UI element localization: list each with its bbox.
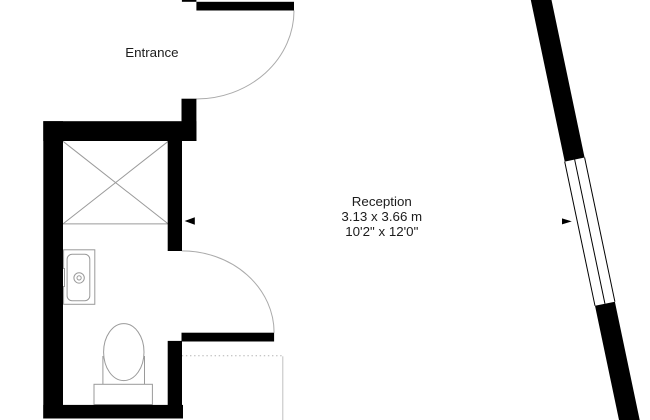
svg-text:Entrance: Entrance — [125, 45, 178, 60]
svg-text:3.13 x 3.66 m: 3.13 x 3.66 m — [341, 209, 422, 224]
svg-text:10'2" x 12'0": 10'2" x 12'0" — [345, 224, 418, 239]
svg-text:Reception: Reception — [352, 194, 412, 209]
